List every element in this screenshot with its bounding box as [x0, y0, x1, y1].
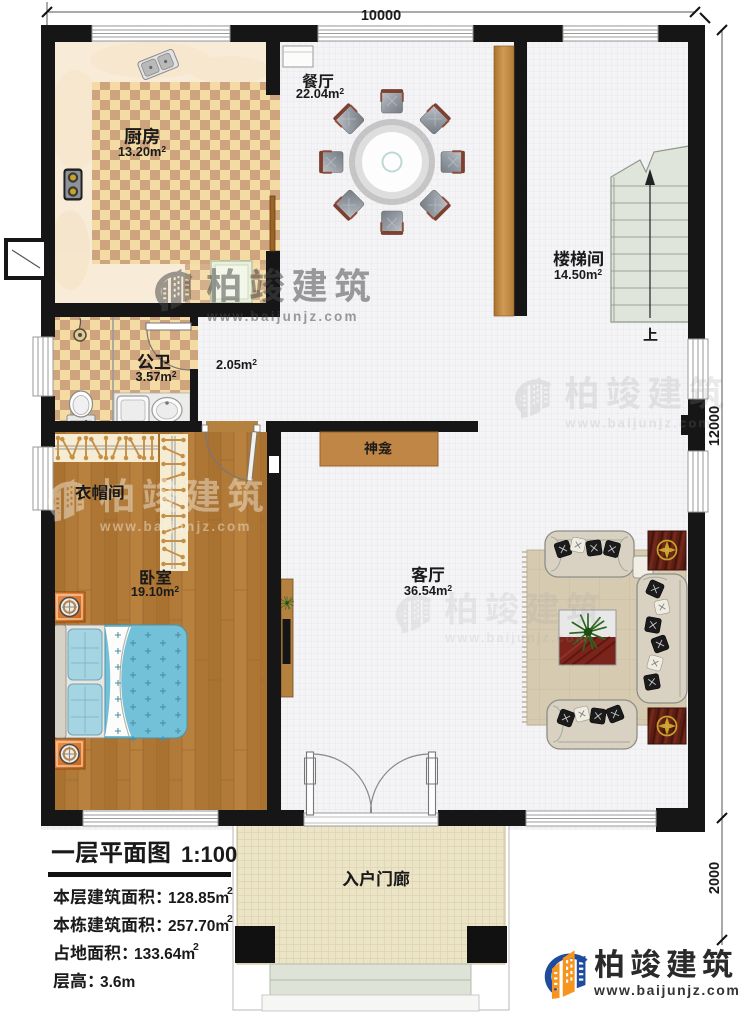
svg-text:10000: 10000: [361, 8, 401, 24]
svg-text:22.04m2: 22.04m2: [296, 86, 344, 101]
svg-text:133.64m: 133.64m: [134, 946, 195, 963]
svg-text:2: 2: [193, 941, 199, 953]
svg-text:2000: 2000: [707, 862, 723, 894]
svg-text:www.baijunjz.com: www.baijunjz.com: [593, 982, 740, 998]
svg-text:2: 2: [227, 885, 233, 897]
svg-text:3.6m: 3.6m: [100, 974, 135, 991]
svg-text:12000: 12000: [707, 406, 723, 446]
svg-text:1:100: 1:100: [181, 842, 237, 867]
svg-text:2.05m2: 2.05m2: [216, 357, 257, 372]
svg-text:2: 2: [227, 913, 233, 925]
svg-text:www.baijunjz.com: www.baijunjz.com: [99, 519, 252, 534]
svg-text:13.20m2: 13.20m2: [118, 144, 166, 159]
svg-text:www.baijunjz.com: www.baijunjz.com: [444, 630, 589, 645]
svg-text:36.54m2: 36.54m2: [404, 583, 452, 598]
svg-text:www.baijunjz.com: www.baijunjz.com: [206, 309, 359, 324]
svg-text:128.85m: 128.85m: [168, 890, 229, 907]
svg-text:www.baijunjz.com: www.baijunjz.com: [564, 415, 712, 430]
svg-text:257.70m: 257.70m: [168, 918, 229, 935]
svg-text:3.57m2: 3.57m2: [135, 369, 176, 384]
svg-text:19.10m2: 19.10m2: [131, 584, 179, 599]
svg-text:14.50m2: 14.50m2: [554, 267, 602, 282]
